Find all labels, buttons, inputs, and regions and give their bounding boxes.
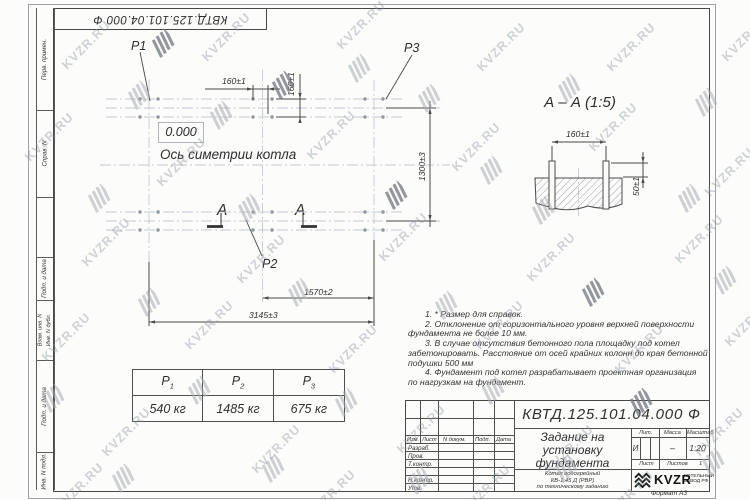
anchor-bolt-left bbox=[549, 161, 555, 209]
leader-lines bbox=[140, 52, 412, 256]
anchor-bolt-markers bbox=[138, 97, 384, 231]
centerlines bbox=[100, 70, 579, 326]
drawing-sheet: КВТД.125.101.04.000 Ф Перв. примен. Спра… bbox=[0, 0, 750, 500]
anchor-bolt-right bbox=[603, 161, 609, 209]
drawing-linework bbox=[0, 0, 750, 500]
section-cut-marks bbox=[207, 213, 317, 227]
